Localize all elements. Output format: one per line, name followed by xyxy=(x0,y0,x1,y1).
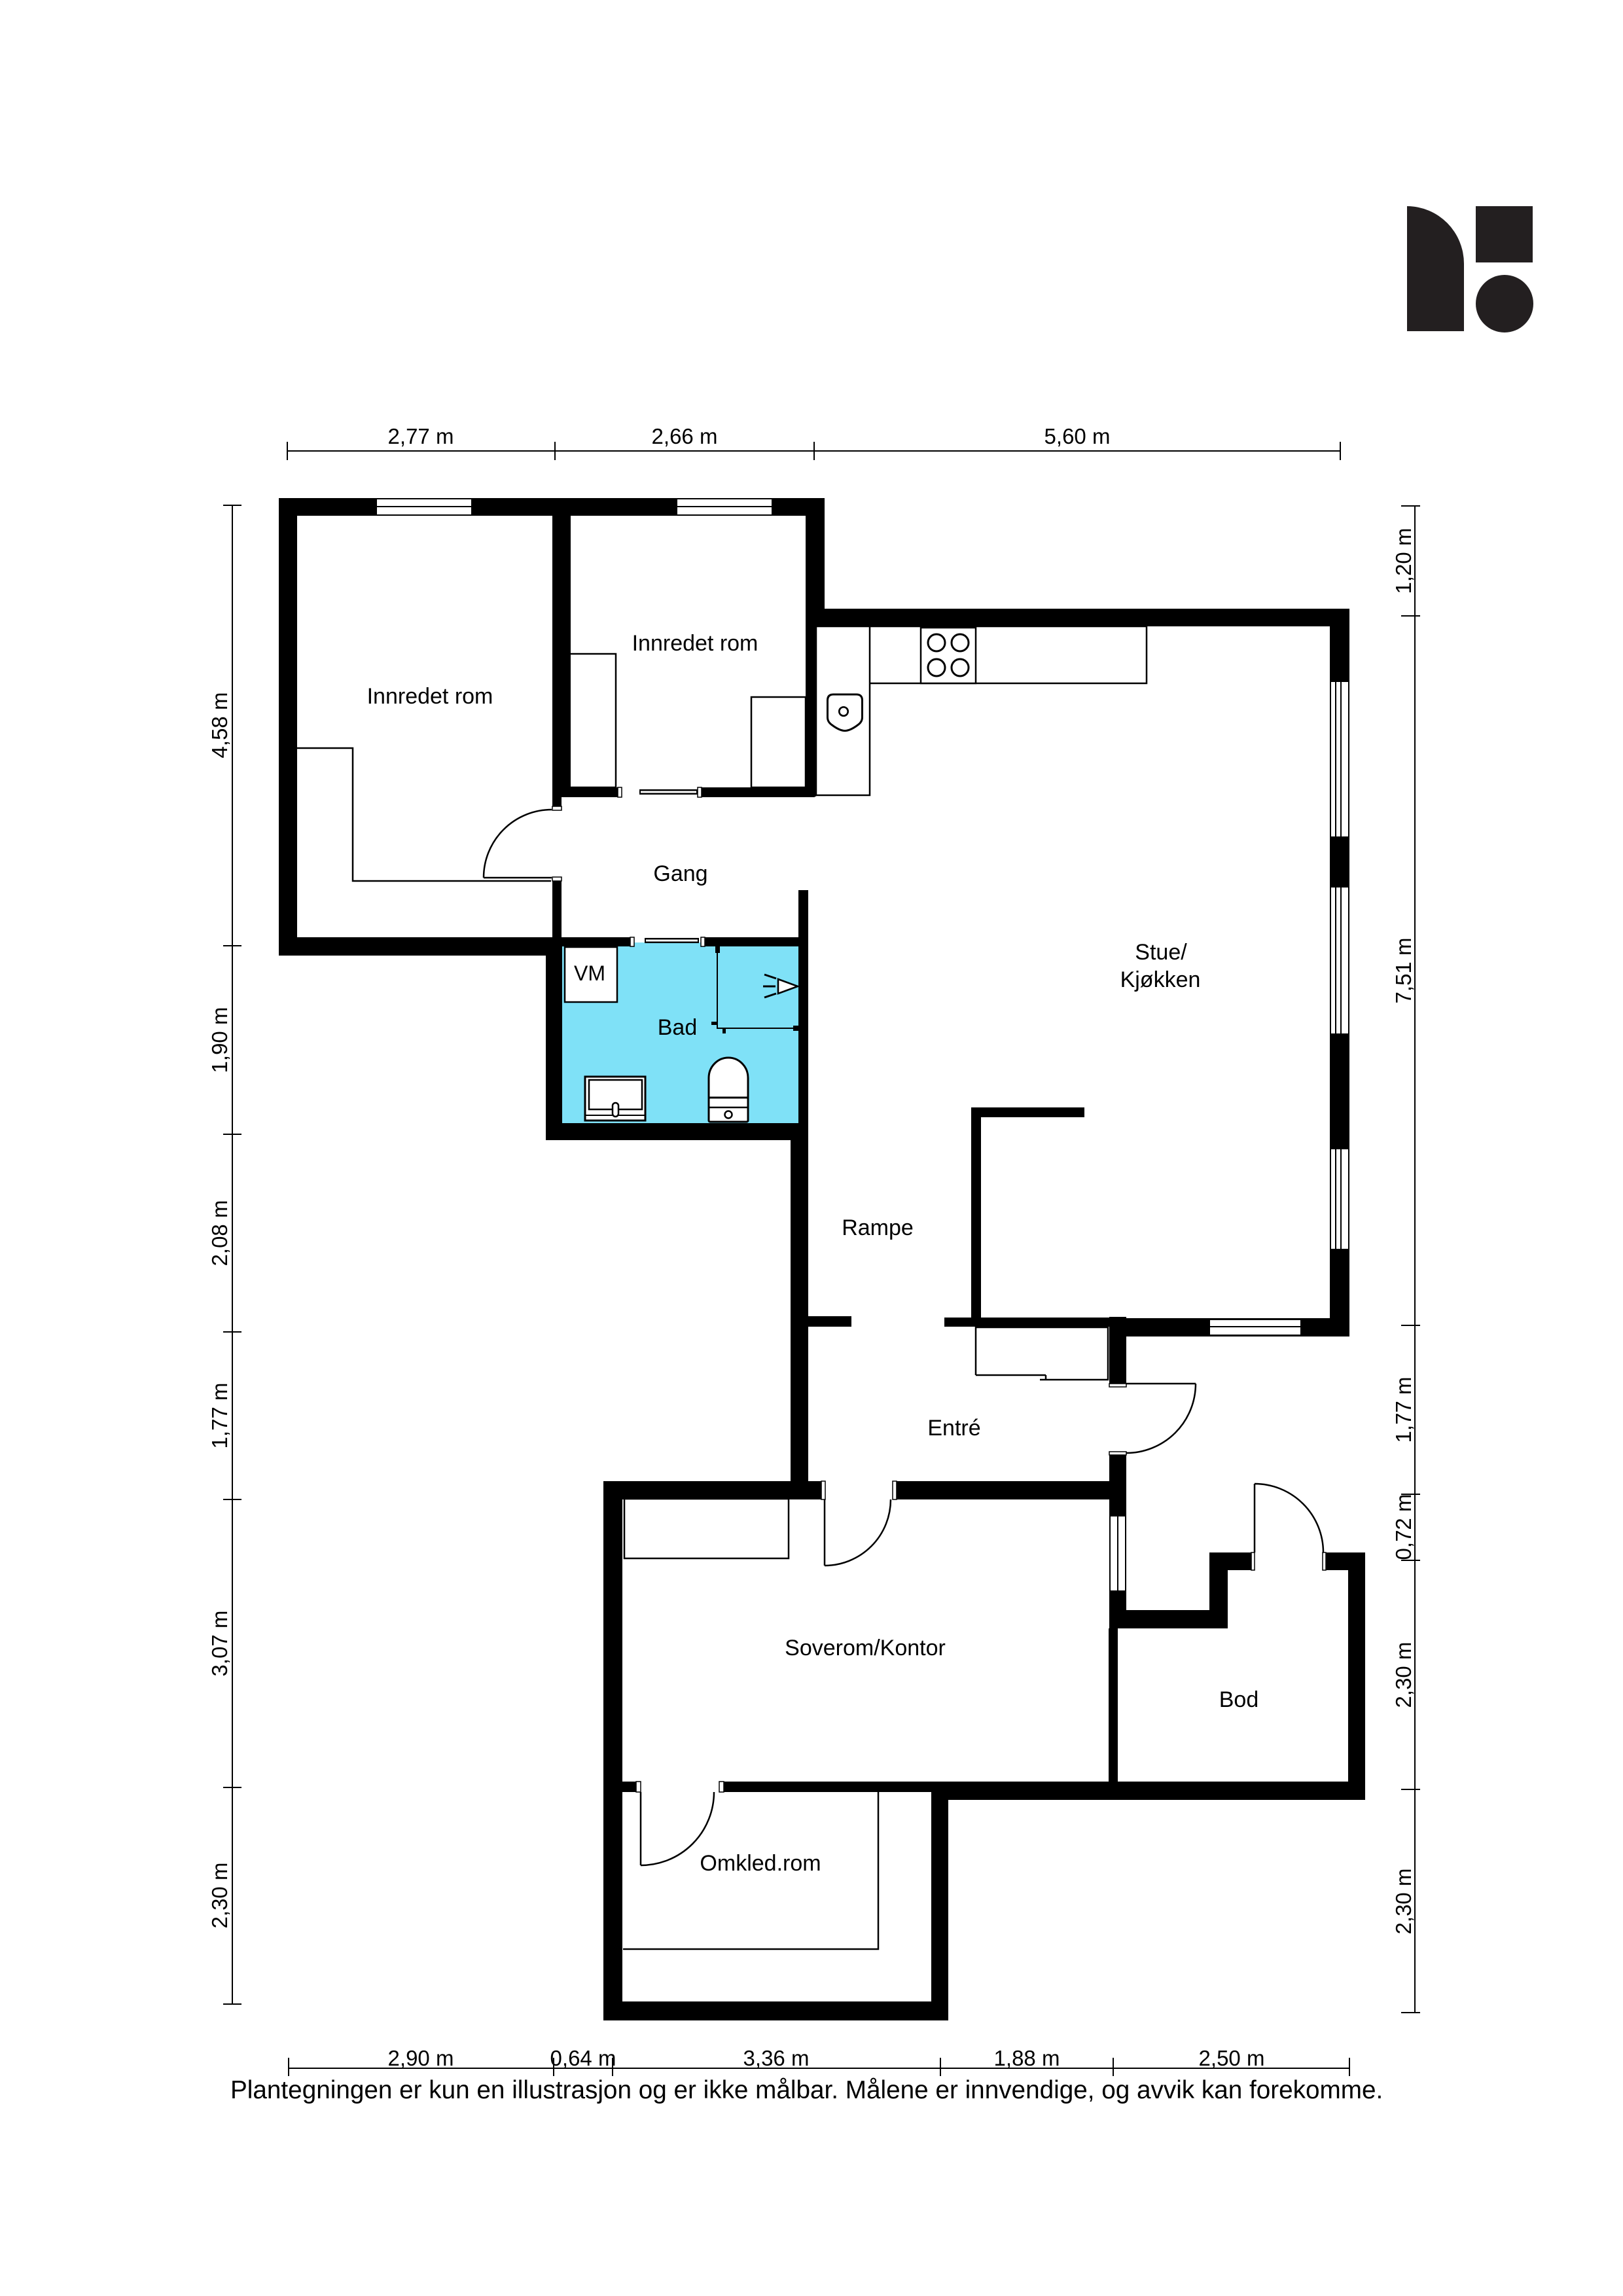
svg-text:Bad: Bad xyxy=(658,1015,698,1040)
svg-text:2,30 m: 2,30 m xyxy=(1391,1642,1416,1708)
svg-text:2,50 m: 2,50 m xyxy=(1199,2046,1265,2070)
svg-text:0,64 m: 0,64 m xyxy=(550,2046,616,2070)
svg-text:Innredet rom: Innredet rom xyxy=(367,684,493,709)
svg-text:1,77 m: 1,77 m xyxy=(207,1383,232,1449)
svg-text:Omkled.rom: Omkled.rom xyxy=(700,1851,821,1876)
svg-text:3,07 m: 3,07 m xyxy=(207,1611,232,1677)
svg-text:1,90 m: 1,90 m xyxy=(207,1007,232,1073)
svg-text:2,08 m: 2,08 m xyxy=(207,1200,232,1266)
svg-text:2,66 m: 2,66 m xyxy=(652,424,718,448)
svg-text:2,90 m: 2,90 m xyxy=(388,2046,454,2070)
svg-text:2,30 m: 2,30 m xyxy=(1391,1869,1416,1935)
svg-text:3,36 m: 3,36 m xyxy=(743,2046,810,2070)
svg-text:Plantegningen er kun en illust: Plantegningen er kun en illustrasjon og … xyxy=(230,2076,1383,2104)
svg-text:Kjøkken: Kjøkken xyxy=(1120,967,1201,992)
svg-text:4,58 m: 4,58 m xyxy=(207,692,232,759)
svg-text:VM: VM xyxy=(574,961,605,985)
svg-text:1,77 m: 1,77 m xyxy=(1391,1377,1416,1443)
svg-text:5,60 m: 5,60 m xyxy=(1044,424,1111,448)
svg-text:2,77 m: 2,77 m xyxy=(388,424,454,448)
svg-text:Gang: Gang xyxy=(653,861,707,886)
svg-text:7,51 m: 7,51 m xyxy=(1391,938,1416,1004)
svg-text:Stue/: Stue/ xyxy=(1135,940,1187,965)
svg-text:1,88 m: 1,88 m xyxy=(994,2046,1060,2070)
svg-text:0,72 m: 0,72 m xyxy=(1391,1494,1416,1560)
svg-text:1,20 m: 1,20 m xyxy=(1391,528,1416,594)
svg-text:Entré: Entré xyxy=(927,1416,980,1441)
svg-text:Rampe: Rampe xyxy=(842,1215,914,1240)
svg-text:Soverom/Kontor: Soverom/Kontor xyxy=(785,1636,946,1660)
svg-text:Bod: Bod xyxy=(1219,1687,1259,1712)
svg-text:2,30 m: 2,30 m xyxy=(207,1863,232,1929)
svg-text:Innredet rom: Innredet rom xyxy=(632,631,758,656)
